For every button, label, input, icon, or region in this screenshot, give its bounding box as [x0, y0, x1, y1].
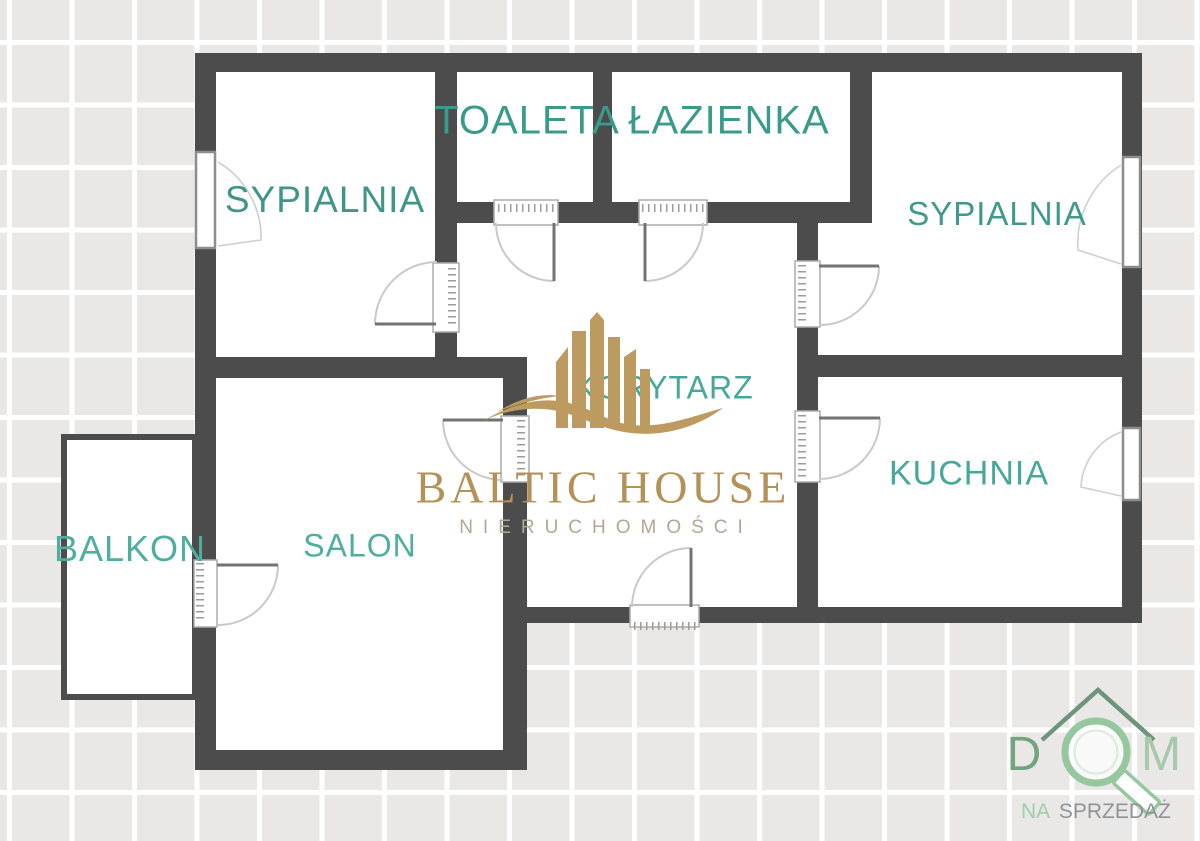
- floor-plan-page: SYPIALNIA TOALETA ŁAZIENKA SYPIALNIA KOR…: [0, 0, 1200, 841]
- logo-tagline-sprzedaz: SPRZEDAŻ: [1059, 800, 1171, 823]
- magnifier-glass-icon: [1065, 721, 1127, 783]
- dom-na-sprzedaz-logo: D M NA SPRZEDAŻ: [0, 0, 1200, 841]
- logo-tagline: NA SPRZEDAŻ: [1021, 800, 1171, 823]
- logo-letter-d: D: [1007, 728, 1042, 781]
- logo-letter-m: M: [1141, 728, 1181, 781]
- brand-wordmark: BALTIC HOUSE: [416, 461, 791, 514]
- logo-tagline-na: NA: [1021, 800, 1050, 823]
- brand-subtitle: NIERUCHOMOŚCI: [459, 517, 753, 539]
